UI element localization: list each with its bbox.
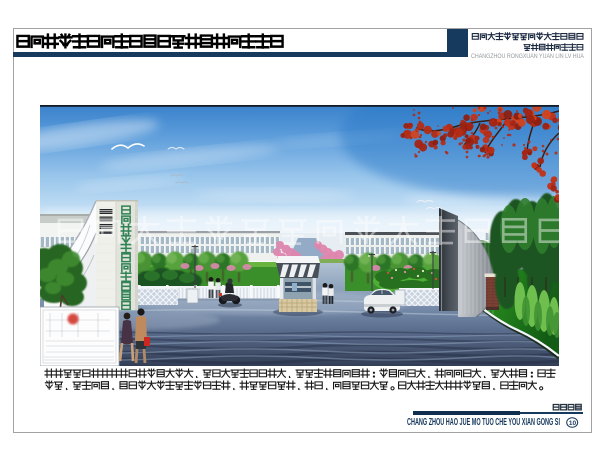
- svg-text:CHANGZHOU RONGXUAN YUAN LIN LV: CHANGZHOU RONGXUAN YUAN LIN LV HUA: [471, 54, 584, 60]
- svg-text:10: 10: [569, 420, 577, 427]
